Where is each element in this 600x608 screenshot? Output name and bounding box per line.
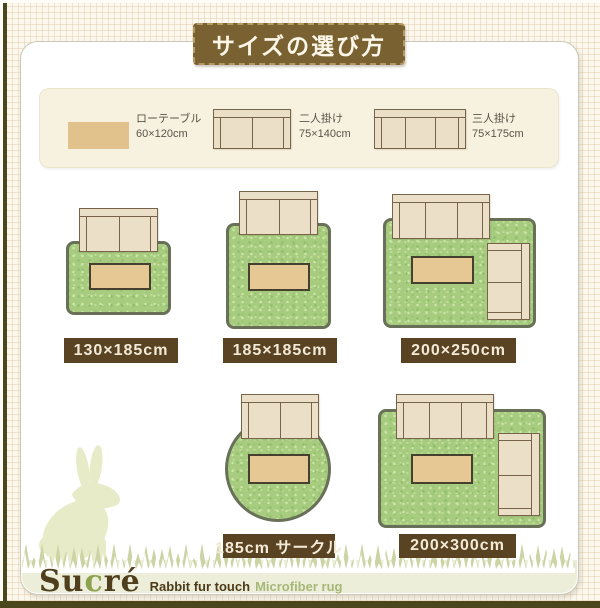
legend-sofa-3seat-illustration <box>374 109 466 149</box>
legend-low-table-label: ローテーブル <box>136 112 201 127</box>
frame-border-bottom <box>0 601 600 608</box>
rug-200x300-sofa-3seat <box>396 394 494 439</box>
legend-sofa-2seat-text: 二人掛け 75×140cm <box>299 112 351 142</box>
rug-200x250-table <box>411 256 474 284</box>
legend-low-table-illustration <box>68 122 129 149</box>
rug-130x185-table <box>89 263 151 290</box>
legend-sofa-3seat-label: 三人掛け <box>472 112 524 127</box>
brand-name: Sucré <box>39 564 141 599</box>
legend-sofa-2seat-size: 75×140cm <box>299 127 351 142</box>
legend-sofa-2seat-label: 二人掛け <box>299 112 351 127</box>
brand-tagline-bold: Rabbit fur touch <box>150 579 250 594</box>
rug-200x250-sofa-2seat-side <box>487 243 530 320</box>
size-label-200x300: 200×300cm <box>399 534 516 558</box>
rug-130x185-sofa-2seat <box>79 208 158 252</box>
rug-185x185-sofa-2seat <box>239 191 318 235</box>
size-label-185-circle: 185cm サークル <box>223 534 335 558</box>
page-background: ローテーブル 60×120cm 二人掛け 75×140cm 三人掛け 75×17… <box>0 0 600 608</box>
brand-logo: Sucré Rabbit fur touch Microfiber rug <box>39 564 342 599</box>
page-margin-top <box>0 0 600 3</box>
brand-name-accent: c <box>84 564 103 599</box>
rug-200x250-sofa-3seat <box>392 194 490 239</box>
rug-200x300-table <box>411 454 473 484</box>
page-title: サイズの選び方 <box>193 23 405 65</box>
legend-sofa-3seat-size: 75×175cm <box>472 127 524 142</box>
size-label-185x185: 185×185cm <box>223 338 337 363</box>
size-label-200x250: 200×250cm <box>401 338 516 363</box>
content-panel: ローテーブル 60×120cm 二人掛け 75×140cm 三人掛け 75×17… <box>20 41 579 595</box>
rug-185-circle-sofa-2seat <box>241 394 319 439</box>
brand-name-prefix: Su <box>39 564 84 599</box>
legend-low-table-text: ローテーブル 60×120cm <box>136 112 201 142</box>
legend-sofa-2seat-illustration <box>213 109 291 149</box>
rug-200x300-sofa-2seat-side <box>498 433 540 516</box>
rug-185x185-table <box>248 263 310 291</box>
frame-border-left <box>3 3 7 602</box>
legend-low-table-size: 60×120cm <box>136 127 201 142</box>
rug-185-circle-table <box>248 454 310 484</box>
size-label-130x185: 130×185cm <box>64 338 178 363</box>
furniture-legend: ローテーブル 60×120cm 二人掛け 75×140cm 三人掛け 75×17… <box>39 88 559 168</box>
legend-sofa-3seat-text: 三人掛け 75×175cm <box>472 112 524 142</box>
brand-tagline-light: Microfiber rug <box>255 579 342 594</box>
brand-name-suffix: ré <box>104 564 141 599</box>
